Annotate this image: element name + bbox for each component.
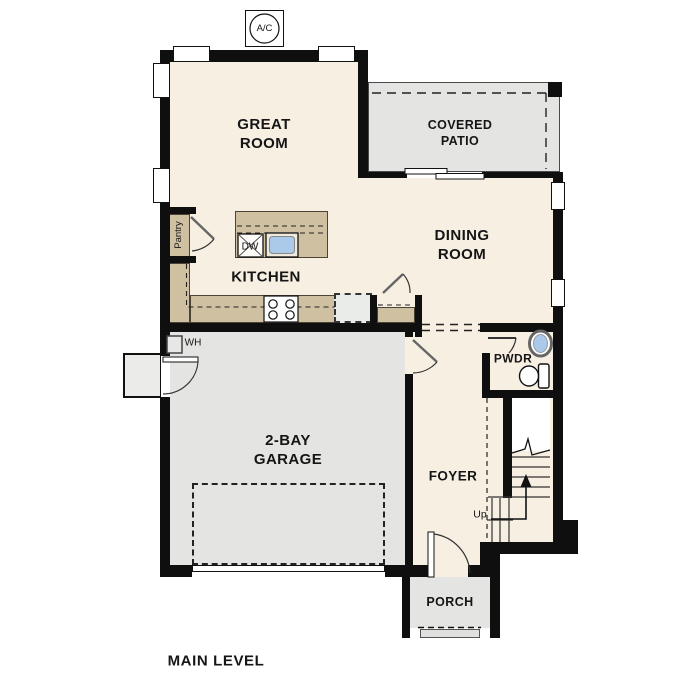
dining-foyer-opening-dashes xyxy=(422,325,480,331)
garage-side-door xyxy=(163,357,198,394)
powder-label: PWDR xyxy=(494,351,532,366)
sliding-door xyxy=(405,169,484,180)
stairs-up-arrowhead xyxy=(521,474,532,487)
closet-door xyxy=(383,274,410,293)
kitchen-label: KITCHEN xyxy=(231,267,300,286)
dishwasher-label: DW xyxy=(242,242,259,255)
powder-sink xyxy=(530,331,552,356)
garage-label: 2-BAY GARAGE xyxy=(254,431,322,469)
stove xyxy=(264,296,298,322)
foyer-label: FOYER xyxy=(429,467,478,484)
great-room-label: GREAT ROOM xyxy=(237,115,290,153)
kitchen-sink xyxy=(266,233,298,257)
up-label: Up xyxy=(473,508,486,521)
water-heater xyxy=(167,336,182,353)
plan-linework xyxy=(0,0,687,687)
ac-label: A/C xyxy=(257,22,273,34)
stairs xyxy=(487,439,550,542)
island-dashed-lines xyxy=(237,226,326,233)
covered-patio-label: COVERED PATIO xyxy=(428,117,493,149)
dining-room-label: DINING ROOM xyxy=(435,226,490,264)
pantry-door xyxy=(191,217,214,251)
pantry-label: Pantry xyxy=(173,221,185,248)
stairs-break-line xyxy=(512,439,550,455)
plan-title: MAIN LEVEL xyxy=(168,651,265,670)
porch-label: PORCH xyxy=(426,594,473,610)
garage-foyer-door xyxy=(413,340,437,373)
floor-plan: GREAT ROOM COVERED PATIO DINING ROOM KIT… xyxy=(0,0,687,687)
front-door xyxy=(428,532,470,577)
toilet xyxy=(520,364,550,388)
water-heater-label: WH xyxy=(185,338,202,351)
